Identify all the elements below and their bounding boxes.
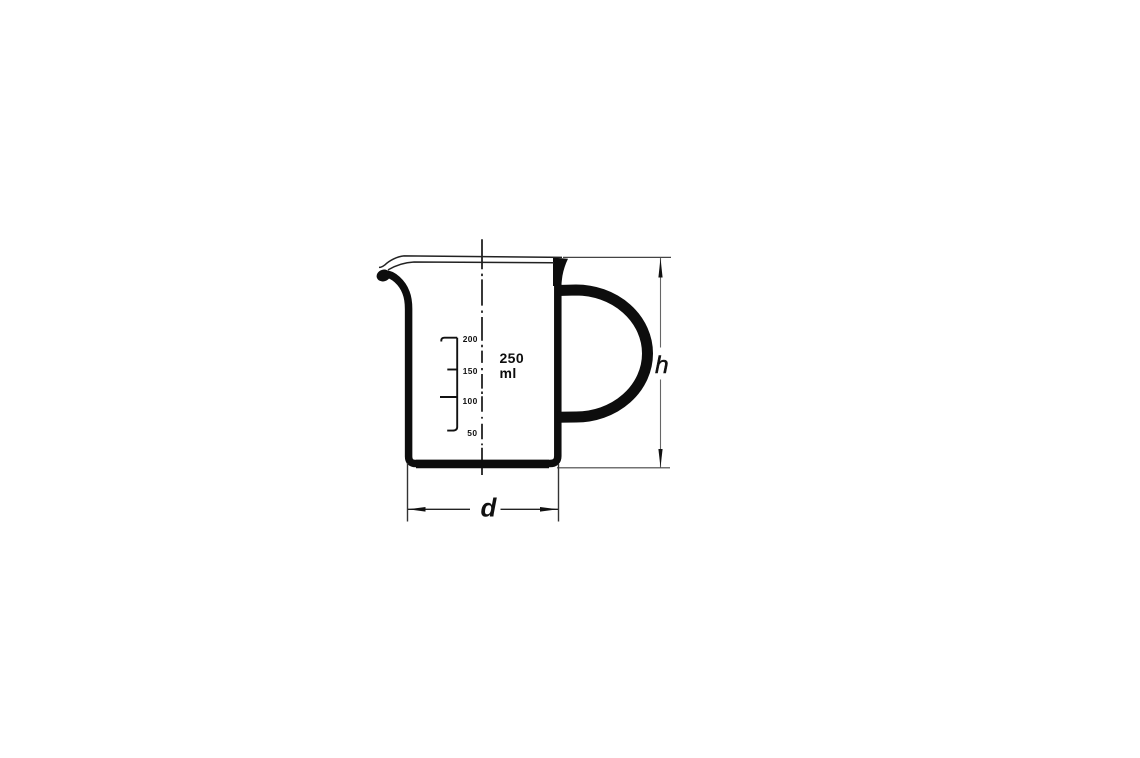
svg-text:h: h (655, 352, 669, 379)
svg-text:ml: ml (500, 365, 517, 381)
svg-text:100: 100 (463, 396, 478, 406)
svg-text:d: d (481, 493, 498, 523)
svg-text:200: 200 (463, 334, 478, 344)
svg-text:250: 250 (500, 350, 525, 366)
svg-text:50: 50 (467, 428, 477, 438)
svg-text:150: 150 (463, 366, 478, 376)
